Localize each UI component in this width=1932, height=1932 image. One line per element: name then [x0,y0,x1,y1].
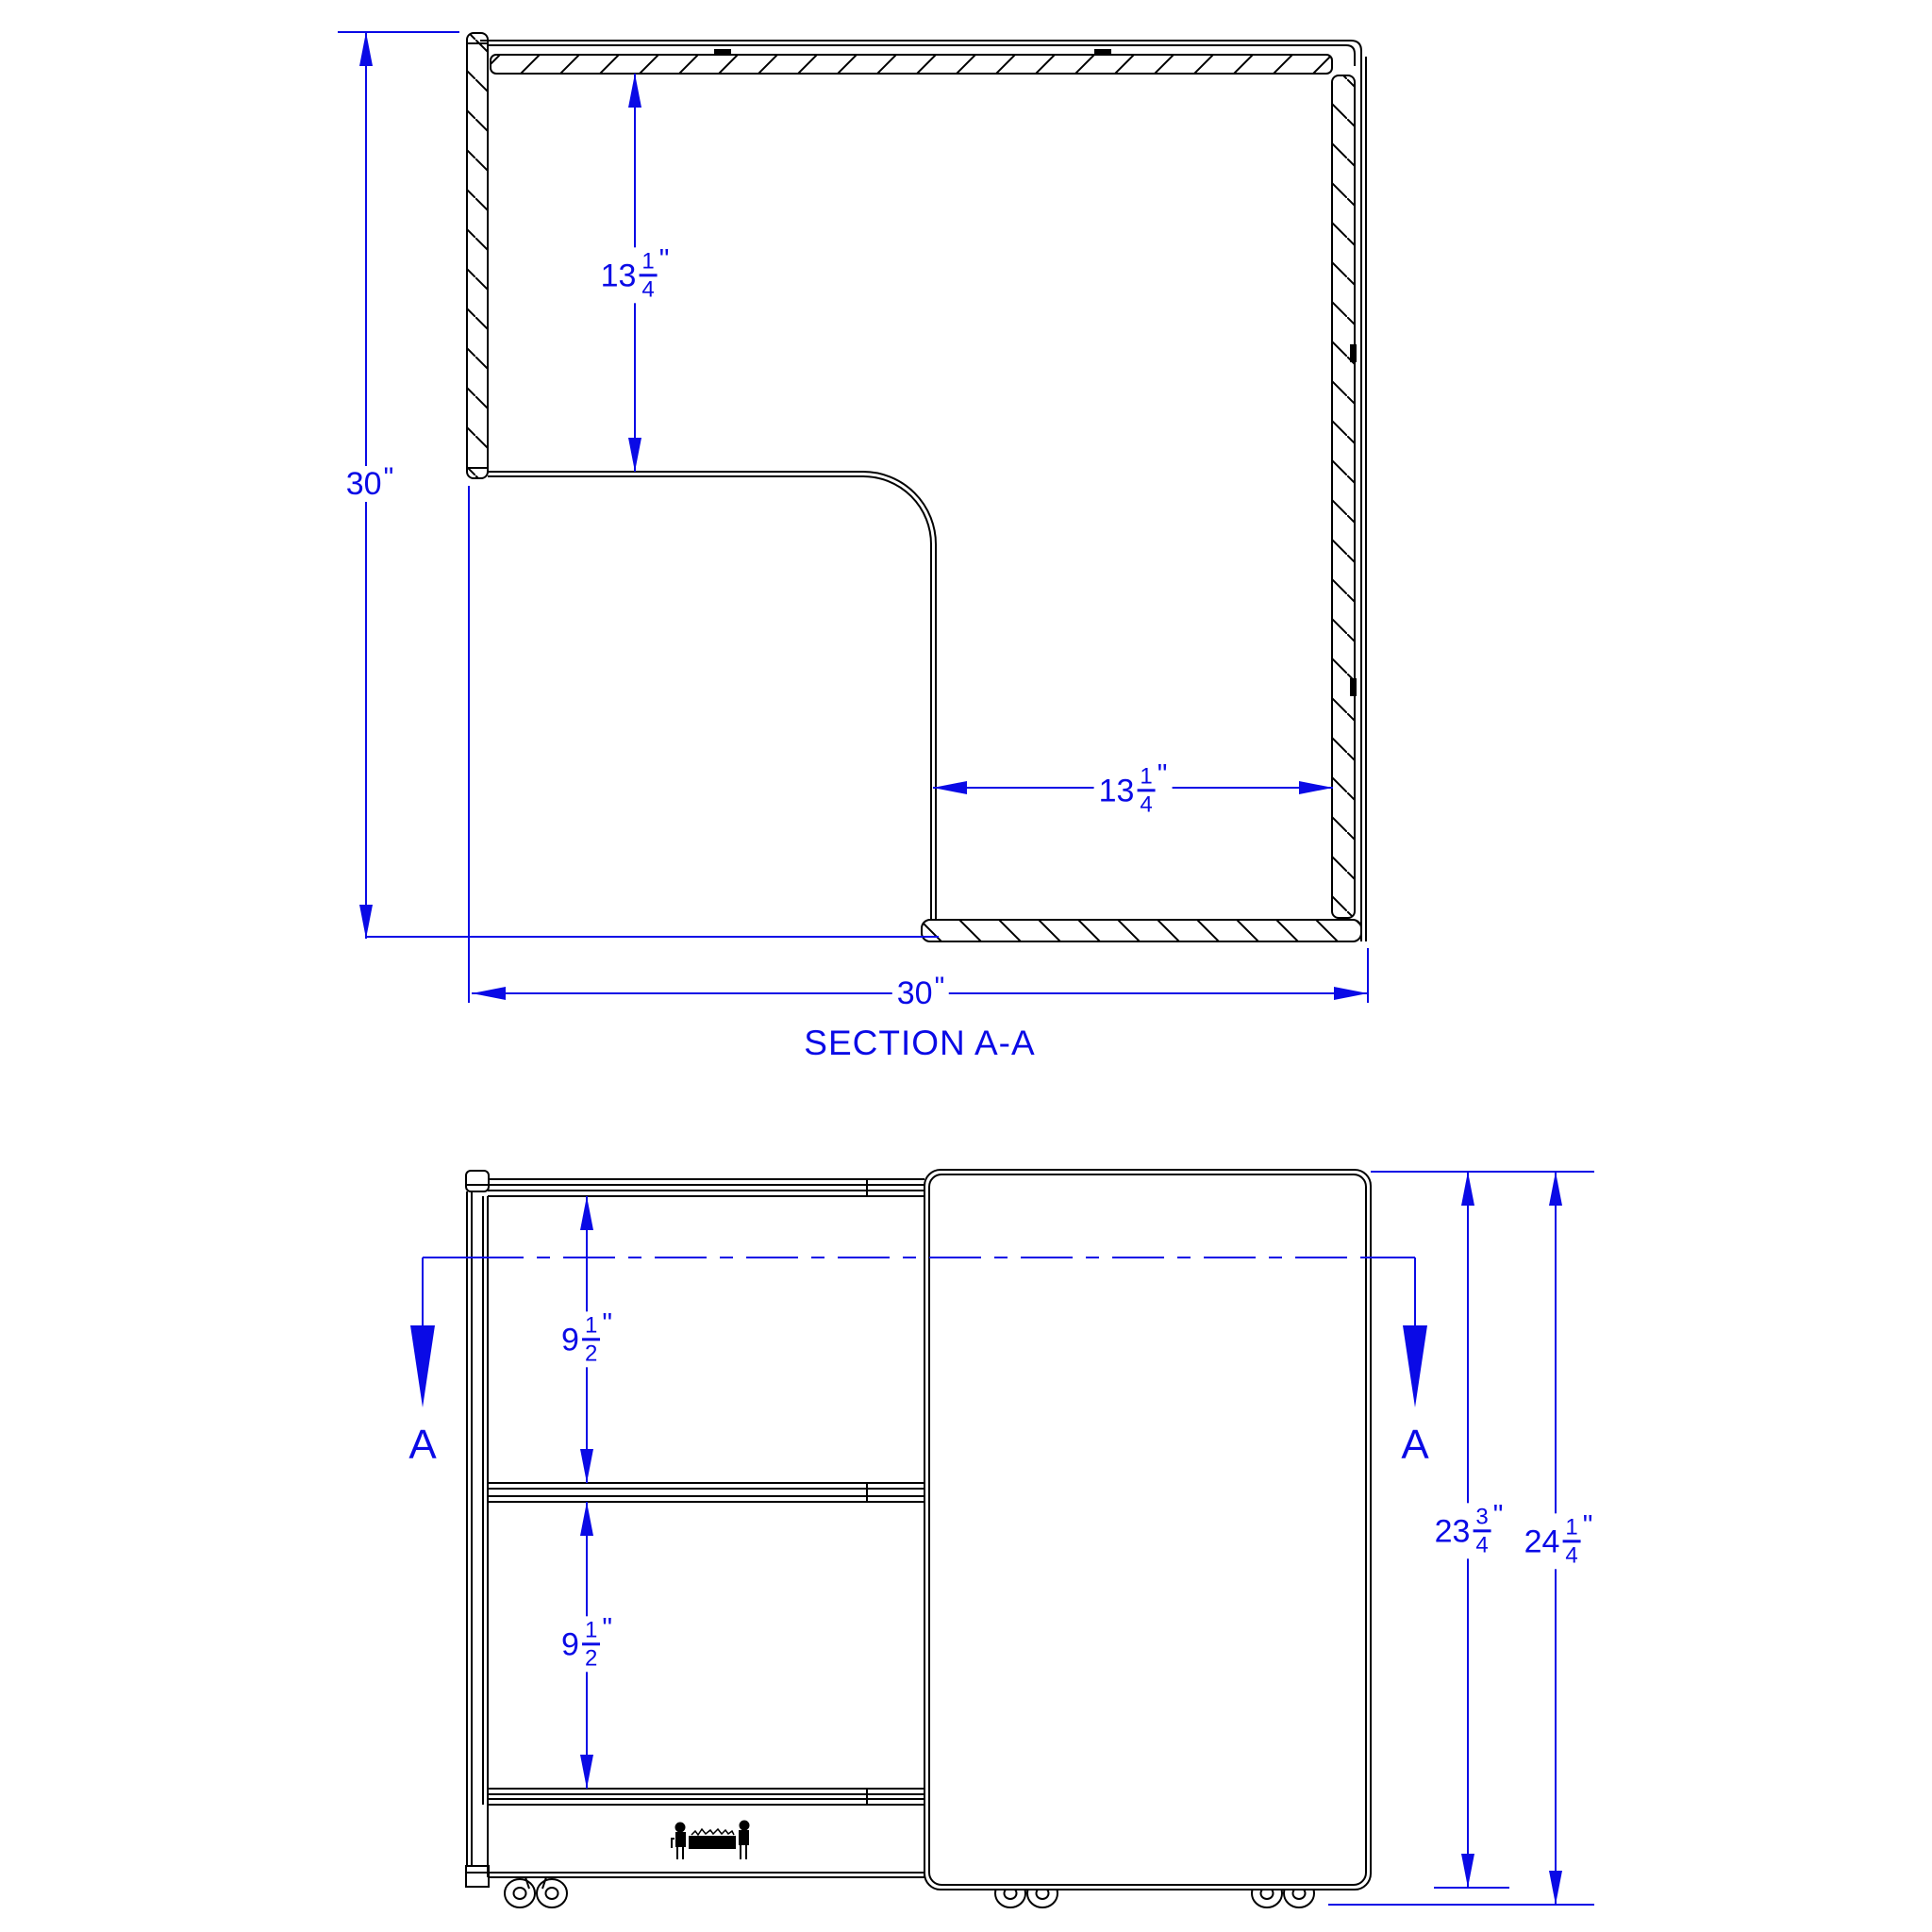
dim-shelf-spacing-lower: 912" [557,1616,617,1672]
section-top-panel [480,41,1361,74]
dim-body-height: 2334" [1430,1503,1508,1558]
dim-section-top-depth: 1314" [596,247,675,303]
section-view [467,33,1366,941]
section-interior-profile [488,472,936,920]
connector-marks [714,49,1357,696]
dim-section-height: 30" [341,466,398,502]
cut-arrow-left [410,1325,435,1407]
section-view-title: SECTION A-A [804,1024,1035,1063]
front-shelves [488,1179,924,1805]
dim-section-width: 30" [892,975,949,1011]
section-dimensions [338,32,1368,1003]
front-left-stile [466,1171,489,1887]
front-view [466,1170,1371,1907]
cad-drawing-sheet: 30" 1314" 1314" 30" SECTION A-A A A 912"… [0,0,1932,1932]
dim-section-right-depth: 1314" [1094,762,1173,818]
brand-emblem-icon [672,1822,749,1860]
section-bottom-panel [922,920,1361,941]
dim-shelf-spacing-upper: 912" [557,1311,617,1367]
cut-label-left: A [408,1422,436,1469]
cut-arrow-right [1403,1325,1427,1407]
cut-label-right: A [1401,1422,1428,1469]
front-kick-panel [488,1805,924,1877]
caster-left [505,1877,567,1907]
section-right-panel [1332,51,1366,941]
dim-overall-height: 2414" [1520,1513,1598,1569]
drawing-canvas [0,0,1932,1932]
section-left-panel [467,33,488,478]
front-side-panel [924,1170,1371,1890]
